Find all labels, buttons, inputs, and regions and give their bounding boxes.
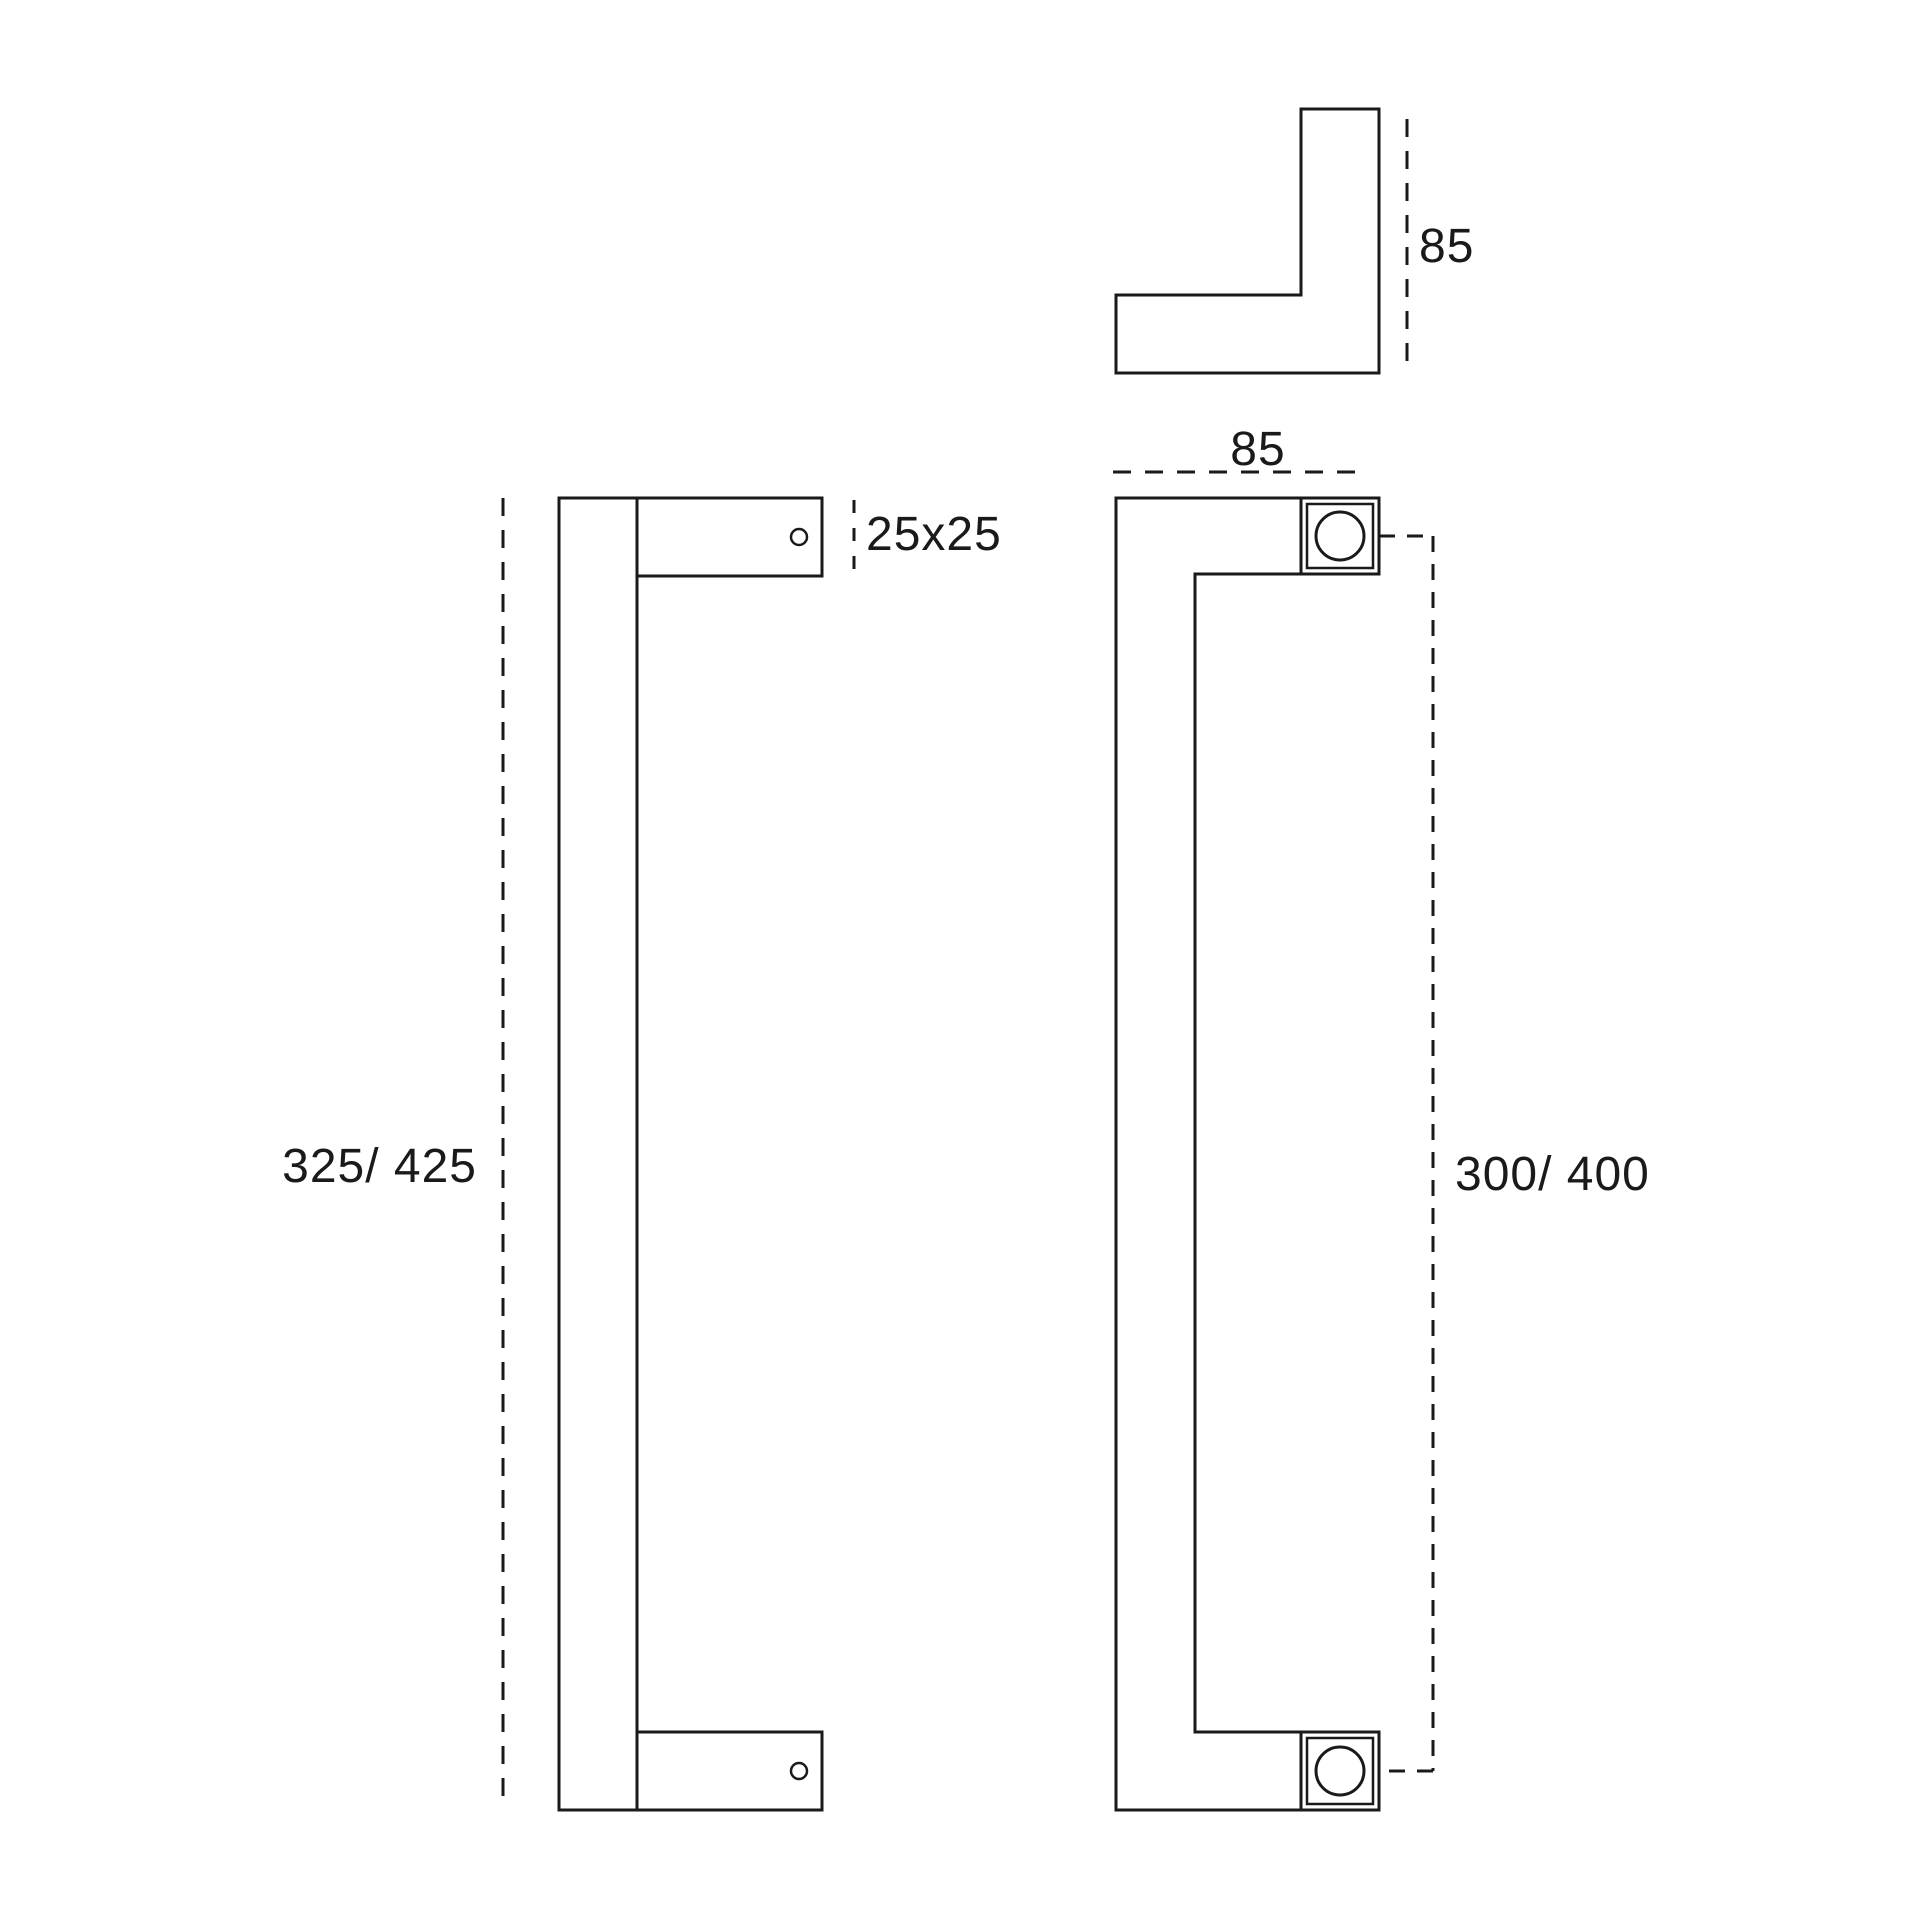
bottom-mounting-plate xyxy=(1301,1732,1379,1810)
bottom-fixing-circle xyxy=(1316,1747,1364,1795)
top-plate-outer-square xyxy=(1301,498,1379,574)
width-dimension-label: 85 xyxy=(1230,423,1285,476)
technical-drawing: 85 325/ 425 25x25 xyxy=(0,0,1920,1920)
top-profile-view: 85 xyxy=(1116,109,1474,373)
cross-section-label: 25x25 xyxy=(866,508,1002,561)
length-dimension-label: 325/ 425 xyxy=(282,1140,477,1193)
side-view: 325/ 425 25x25 xyxy=(282,498,1002,1810)
centers-dimension-label: 300/ 400 xyxy=(1455,1148,1650,1201)
top-profile-outline xyxy=(1116,109,1379,373)
top-mounting-plate xyxy=(1301,498,1379,574)
top-fixing-circle xyxy=(1316,512,1364,560)
top-bracket xyxy=(637,498,822,576)
bottom-screw-hole xyxy=(791,1763,807,1779)
top-screw-hole xyxy=(791,529,807,545)
front-outline-outer xyxy=(1116,498,1301,1810)
front-view: 85 300/ 400 xyxy=(1113,423,1650,1810)
bottom-bracket xyxy=(637,1732,822,1810)
bottom-plate-outer-square xyxy=(1301,1732,1379,1810)
drawing-canvas: 85 325/ 425 25x25 xyxy=(0,0,1920,1920)
front-outline-inner xyxy=(1195,574,1301,1732)
grip-bar-side xyxy=(559,498,637,1810)
depth-dimension-label: 85 xyxy=(1419,220,1474,273)
